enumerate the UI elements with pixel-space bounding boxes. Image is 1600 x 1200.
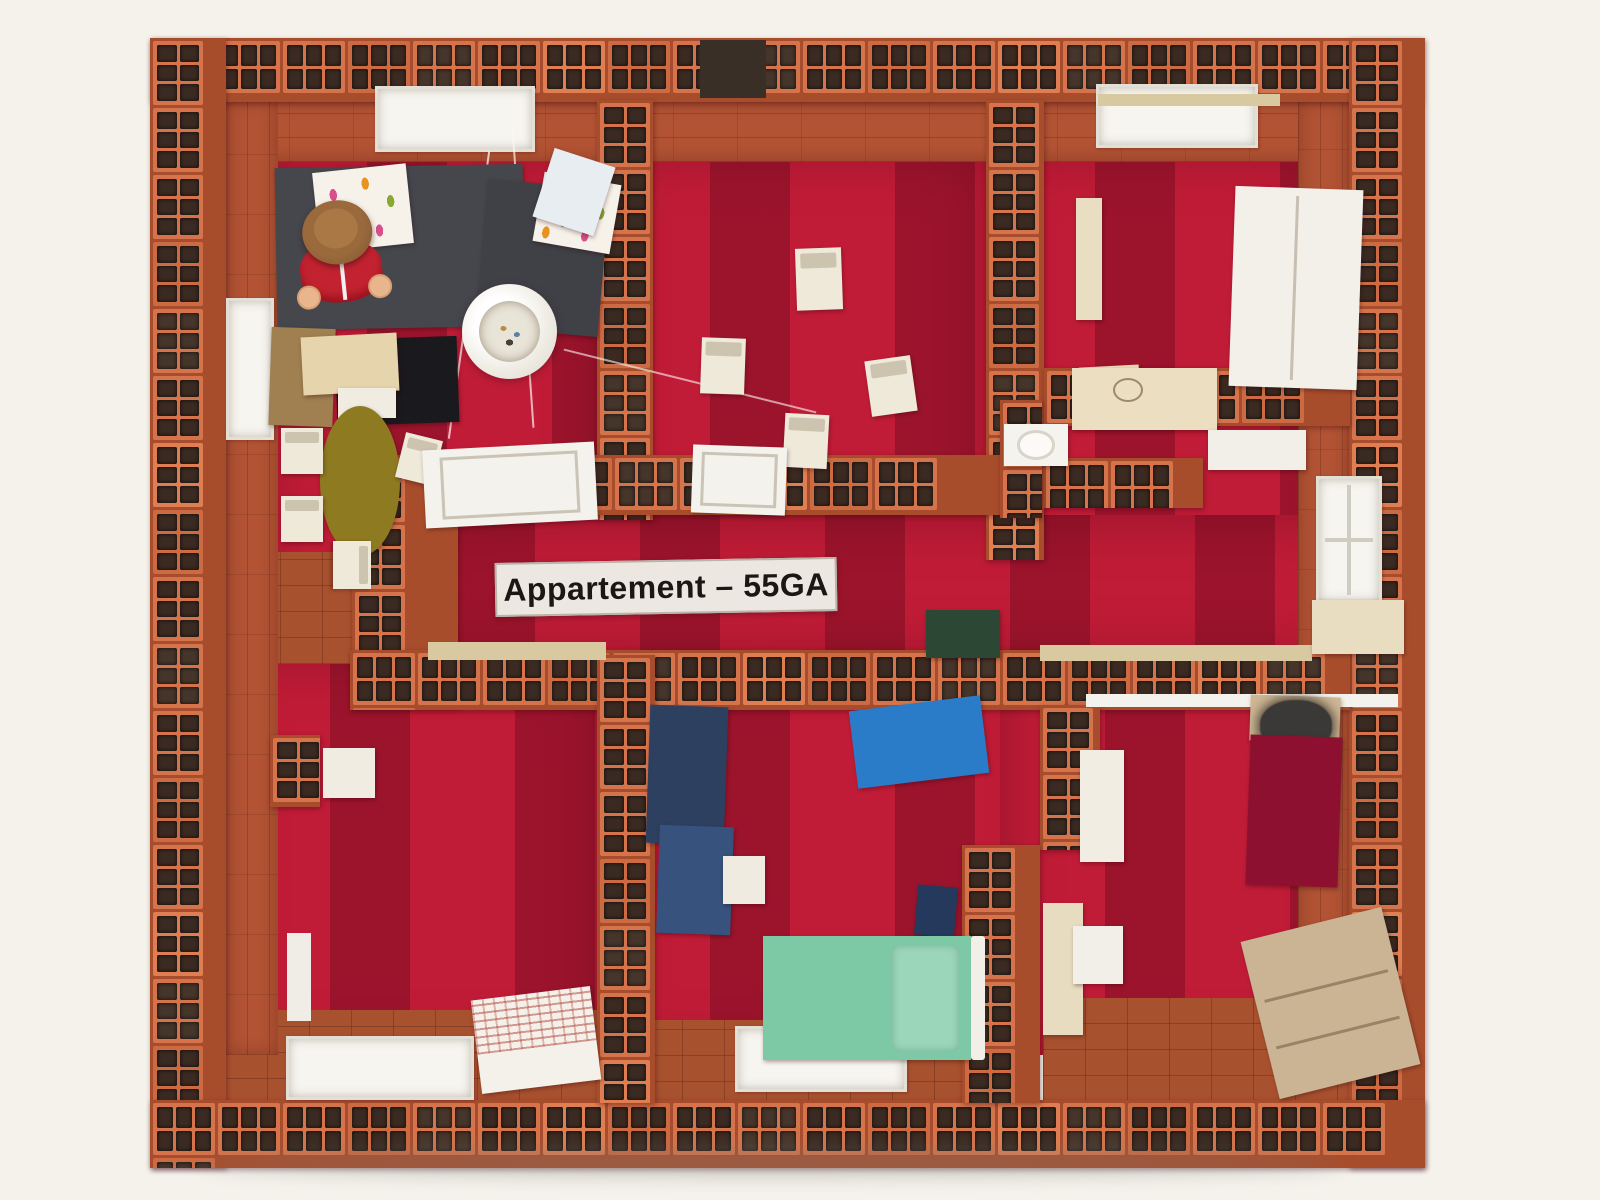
inner-face-left [225,100,278,1055]
wardrobe-seam [1290,196,1299,380]
wood-lintel [1098,94,1280,106]
hollow-brick [868,1103,930,1155]
chair-chair-back [706,342,742,357]
hollow-brick [998,41,1060,93]
hollow-brick [965,848,1015,912]
chair-chair-back [359,546,368,584]
outer-wall-left [150,38,226,1168]
hollow-brick [600,859,650,923]
hollow-brick [153,1103,215,1155]
toilet [1004,424,1068,466]
bed-red [1245,734,1342,887]
bed-green-bedframe [971,936,985,1060]
window-left [226,298,274,440]
door-panel [422,442,598,529]
dresser-bar [1264,969,1389,1003]
ground-shadow [200,1152,1340,1174]
hollow-brick [1128,1103,1190,1155]
hollow-brick [868,41,930,93]
hollow-brick [1352,845,1402,909]
hollow-brick [743,653,805,705]
hollow-brick [998,1103,1060,1155]
hollow-brick [543,1103,605,1155]
hollow-brick [1003,470,1042,518]
door-hook [1073,926,1123,984]
hollow-brick [933,1103,995,1155]
hollow-brick [153,41,203,105]
apartment-model-photo: Appartement – 55GA [0,0,1600,1200]
hollow-brick [273,738,320,802]
bathtub-edge [1208,430,1306,470]
hollow-brick [989,170,1039,234]
bed-blue [849,695,990,789]
door-panel [1312,600,1404,654]
hollow-brick [543,41,605,93]
lamp-texture [479,301,540,362]
door-panel-innerframe [440,450,581,520]
appliance-circle-mark [1113,378,1143,402]
chair [795,247,843,311]
hollow-brick [600,993,650,1057]
hollow-brick [1258,41,1320,93]
hollow-brick [283,1103,345,1155]
hollow-brick [608,1103,670,1155]
hollow-brick [413,1103,475,1155]
box-navy [914,884,958,937]
hollow-brick [153,242,203,306]
hollow-brick [153,443,203,507]
chair-chair-back [285,432,319,443]
dining-table [320,406,400,556]
hollow-brick [353,653,415,705]
hollow-brick [218,1103,280,1155]
hollow-brick [873,653,935,705]
hollow-brick [600,371,650,435]
hollow-brick [600,658,650,722]
hollow-brick [1352,711,1402,775]
hollow-brick [600,725,650,789]
bed-navy [646,705,729,846]
hollow-brick [153,644,203,708]
hollow-brick [1352,309,1402,373]
hollow-brick [153,778,203,842]
door-panel-innerframe [700,452,777,509]
hollow-brick [933,41,995,93]
wall-cabinet [323,748,375,798]
chair-chair-back [789,417,825,432]
hollow-brick [153,376,203,440]
window-right [1316,476,1382,604]
hollow-brick [283,41,345,93]
hollow-brick [153,309,203,373]
chair [700,337,746,395]
window-top-living [375,86,535,152]
hollow-brick [600,792,650,856]
hollow-brick [153,711,203,775]
hollow-brick [153,510,203,574]
chair [864,355,917,417]
hollow-brick [483,653,545,705]
hollow-brick [418,653,480,705]
hollow-brick [355,592,405,656]
door-jamb [287,933,311,1021]
hollow-brick [673,1103,735,1155]
hollow-brick [803,41,865,93]
hollow-brick [600,103,650,167]
hollow-brick [989,304,1039,368]
bed-green-pillow [892,945,959,1052]
bench [1080,750,1124,862]
hollow-brick [600,926,650,990]
apartment-label-sign: Appartement – 55GA [495,557,838,617]
hollow-brick [153,577,203,641]
wood-lintel [1040,645,1312,661]
hollow-brick [478,1103,540,1155]
chair [783,413,830,469]
chair [281,496,323,542]
hollow-brick [989,103,1039,167]
hollow-brick [1063,1103,1125,1155]
chair-chair-back [285,500,319,511]
hollow-brick [738,1103,800,1155]
chair [281,428,323,474]
apartment-label-text: Appartement – 55GA [503,566,829,609]
bed-green [763,936,971,1060]
hollow-brick [615,458,677,510]
hollow-brick [678,653,740,705]
paper-pendant-lamp-icon [462,284,557,379]
hollow-brick [153,108,203,172]
hollow-brick [1352,778,1402,842]
sketched-box [471,986,602,1094]
wall-shelf [1076,198,1102,320]
loose-brick-piece [270,735,320,807]
nightstand [723,856,765,904]
wall-bottomleft-bedroom [597,655,655,1103]
window-bottom-left [286,1036,474,1100]
doorway-dark [700,40,766,98]
hollow-brick [218,41,280,93]
hollow-brick [1193,1103,1255,1155]
chair-chair-back [800,252,837,268]
door-panel [691,444,787,515]
hollow-brick [1323,1103,1385,1155]
toilet-toilet-oval [1017,430,1055,459]
window-mullions [1325,485,1373,595]
hollow-brick [153,845,203,909]
wardrobe [1229,186,1364,390]
hollow-brick [353,708,415,710]
hollow-brick [1352,108,1402,172]
chair [333,541,371,589]
green-mat [926,610,1000,658]
hollow-brick [1352,41,1402,105]
hollow-brick [875,458,937,510]
chair-chair-back [869,360,907,378]
hollow-brick [989,237,1039,301]
hollow-brick [153,979,203,1043]
hollow-brick [153,175,203,239]
hollow-brick [1352,376,1402,440]
wood-lintel [428,642,606,660]
hollow-brick [1258,1103,1320,1155]
hollow-brick [608,41,670,93]
hollow-brick [153,912,203,976]
hollow-brick [600,1060,650,1103]
appliance [1072,368,1217,430]
hollow-brick [1111,461,1173,508]
kitchen-counter [301,333,400,396]
toy-figure [290,204,394,333]
hollow-brick [600,304,650,368]
hollow-brick [808,653,870,705]
dresser-bar [1276,1016,1401,1050]
hollow-brick [1046,461,1108,508]
white-lintel [1086,694,1398,707]
hollow-brick [803,1103,865,1155]
hollow-brick [348,1103,410,1155]
